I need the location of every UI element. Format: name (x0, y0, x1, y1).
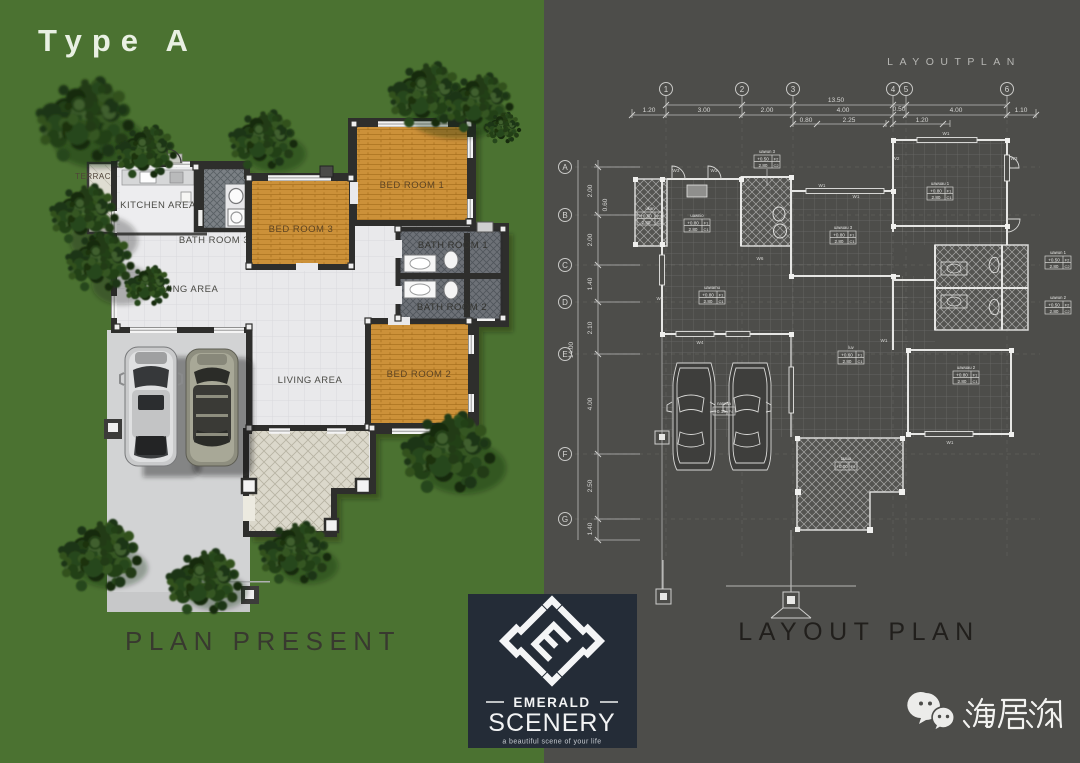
svg-text:F1: F1 (850, 233, 855, 238)
svg-text:W1: W1 (853, 194, 860, 199)
svg-text:W1: W1 (819, 183, 826, 188)
svg-text:2.00: 2.00 (587, 233, 594, 246)
svg-text:2.80: 2.80 (835, 239, 844, 244)
svg-text:LAYOUT PLAN: LAYOUT PLAN (738, 618, 979, 646)
svg-text:C1: C1 (849, 239, 855, 244)
svg-text:B: B (562, 211, 567, 220)
svg-text:uawuau 2: uawuau 2 (957, 365, 976, 370)
svg-text:C1: C1 (972, 379, 978, 384)
svg-text:D: D (562, 298, 568, 307)
svg-text:0.50: 0.50 (893, 106, 906, 113)
svg-text:P2: P2 (657, 214, 663, 219)
svg-text:2.50: 2.50 (587, 479, 594, 492)
svg-text:KITCHEN AREA: KITCHEN AREA (120, 200, 196, 211)
svg-text:+0.50: +0.50 (1048, 258, 1060, 263)
svg-text:BATH ROOM 1: BATH ROOM 1 (418, 240, 488, 251)
svg-text:BATH ROOM 2: BATH ROOM 2 (417, 302, 487, 313)
svg-text:BATH ROOM 3: BATH ROOM 3 (179, 235, 249, 246)
svg-text:6: 6 (1005, 85, 1010, 94)
svg-text:C2: C2 (1064, 309, 1070, 314)
svg-text:2.80: 2.80 (932, 195, 941, 200)
svg-text:1.10: 1.10 (1015, 107, 1028, 114)
svg-text:+0.80: +0.80 (956, 373, 968, 378)
svg-text:W3: W3 (673, 168, 680, 173)
svg-text:4.00: 4.00 (950, 107, 963, 114)
svg-text:+0.50: +0.50 (1048, 303, 1060, 308)
svg-text:3: 3 (791, 85, 796, 94)
svg-text:+0.60: +0.60 (841, 353, 853, 358)
svg-text:uawuau 1: uawuau 1 (931, 181, 950, 186)
svg-text:2.80: 2.80 (704, 299, 713, 304)
svg-text:2.80: 2.80 (1050, 309, 1059, 314)
svg-text:F2: F2 (1065, 303, 1070, 308)
svg-text:13.50: 13.50 (828, 97, 845, 104)
svg-text:C1: C1 (718, 299, 724, 304)
svg-text:ukan: ukan (645, 206, 655, 211)
svg-text:C2: C2 (656, 220, 662, 225)
svg-text:2.80: 2.80 (958, 379, 967, 384)
svg-text:a beautiful scene of your life: a beautiful scene of your life (502, 739, 601, 746)
svg-text:2.00: 2.00 (761, 107, 774, 114)
svg-text:W4: W4 (697, 340, 704, 345)
svg-text:2.80: 2.80 (1050, 264, 1059, 269)
svg-text:1.40: 1.40 (587, 522, 594, 535)
svg-text:luv: luv (848, 345, 854, 350)
svg-text:+0.80: +0.80 (833, 233, 845, 238)
svg-text:uawun 2: uawun 2 (1050, 295, 1067, 300)
svg-text:BED ROOM 3: BED ROOM 3 (269, 224, 334, 235)
svg-text:1.40: 1.40 (587, 277, 594, 290)
svg-text:G: G (562, 515, 568, 524)
svg-text:C1: C1 (703, 227, 709, 232)
svg-text:F5: F5 (851, 464, 856, 469)
svg-text:0.60: 0.60 (602, 198, 609, 211)
svg-text:LIVING AREA: LIVING AREA (278, 375, 343, 386)
svg-text:W1: W1 (947, 440, 954, 445)
svg-text:uawun 1: uawun 1 (1050, 250, 1067, 255)
svg-text:1: 1 (664, 85, 669, 94)
svg-text:F2: F2 (1065, 258, 1070, 263)
svg-text:14.00: 14.00 (568, 341, 575, 358)
svg-text:2.80: 2.80 (689, 227, 698, 232)
svg-text:nannsa: nannsa (717, 401, 731, 406)
svg-text:C1: C1 (946, 195, 952, 200)
svg-text:C1: C1 (857, 359, 863, 364)
svg-text:5: 5 (904, 85, 909, 94)
svg-text:1.20: 1.20 (916, 117, 929, 124)
svg-text:F1: F1 (947, 189, 952, 194)
svg-text:PLAN PRESENT: PLAN PRESENT (125, 626, 401, 656)
svg-text:taaua: taaua (841, 456, 852, 461)
svg-text:+0.80: +0.80 (702, 293, 714, 298)
svg-text:0.80: 0.80 (800, 117, 813, 124)
svg-text:F2: F2 (774, 157, 779, 162)
svg-text:BED ROOM 1: BED ROOM 1 (380, 180, 445, 191)
svg-text:W3: W3 (1011, 156, 1018, 161)
svg-text:F: F (563, 450, 568, 459)
svg-text:SCENERY: SCENERY (488, 709, 615, 737)
svg-text:LAYOUTPLAN: LAYOUTPLAN (887, 56, 1021, 68)
svg-text:Type A: Type A (38, 23, 198, 58)
svg-text:uawamu: uawamu (704, 285, 720, 290)
svg-text:C2: C2 (1064, 264, 1070, 269)
svg-text:W2: W2 (657, 296, 664, 301)
svg-text:uawun 3: uawun 3 (759, 149, 776, 154)
svg-text:3.00: 3.00 (698, 107, 711, 114)
svg-text:2.80: 2.80 (843, 359, 852, 364)
svg-text:C2: C2 (773, 163, 779, 168)
svg-text:F1: F1 (973, 373, 978, 378)
svg-text:2.00: 2.00 (587, 184, 594, 197)
svg-text:W1: W1 (881, 338, 888, 343)
svg-text:4.00: 4.00 (837, 107, 850, 114)
svg-text:1.20: 1.20 (643, 107, 656, 114)
svg-text:4.00: 4.00 (587, 397, 594, 410)
svg-text:+0.80: +0.80 (930, 189, 942, 194)
svg-text:F1: F1 (858, 353, 863, 358)
svg-text:+0.50: +0.50 (757, 157, 769, 162)
svg-text:W1: W1 (943, 131, 950, 136)
svg-text:4: 4 (891, 85, 896, 94)
svg-text:C: C (562, 261, 568, 270)
svg-text:2.80: 2.80 (642, 220, 651, 225)
svg-text:W3: W3 (711, 168, 718, 173)
svg-text:+0.80: +0.80 (687, 221, 699, 226)
svg-text:+0.50: +0.50 (640, 214, 652, 219)
svg-text:F4: F4 (729, 409, 734, 414)
svg-text:F1: F1 (719, 293, 724, 298)
svg-text:2.80: 2.80 (759, 163, 768, 168)
svg-text:TERRACE: TERRACE (75, 172, 117, 181)
svg-text:BED ROOM 2: BED ROOM 2 (387, 369, 452, 380)
svg-text:+0.00: +0.00 (836, 464, 848, 469)
svg-text:A: A (562, 163, 568, 172)
svg-text:2: 2 (740, 85, 745, 94)
svg-text:+0.15: +0.15 (714, 409, 726, 414)
svg-text:2.25: 2.25 (843, 117, 856, 124)
svg-text:EMERALD: EMERALD (513, 695, 590, 710)
svg-text:W6: W6 (757, 256, 764, 261)
svg-text:uawuau 3: uawuau 3 (834, 225, 853, 230)
svg-text:E: E (562, 350, 567, 359)
svg-text:uawnio: uawnio (690, 213, 704, 218)
svg-text:F1: F1 (704, 221, 709, 226)
svg-text:W2: W2 (893, 156, 900, 161)
svg-text:2.10: 2.10 (587, 321, 594, 334)
